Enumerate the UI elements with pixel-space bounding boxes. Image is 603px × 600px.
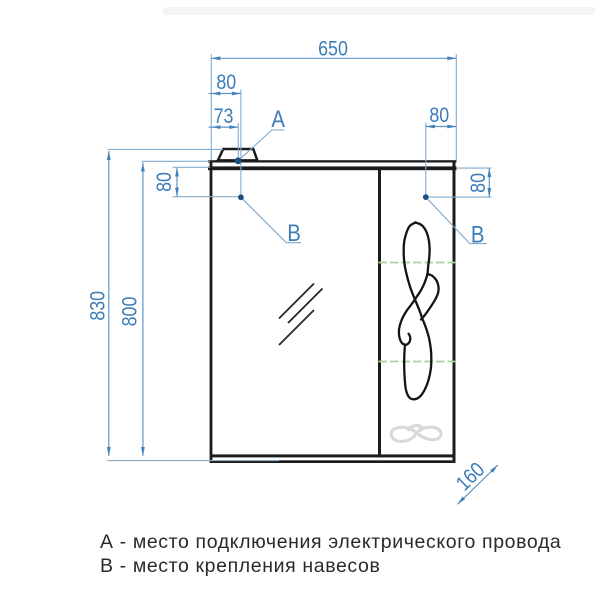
svg-text:650: 650 xyxy=(318,37,348,61)
svg-text:800: 800 xyxy=(118,296,142,326)
svg-text:80: 80 xyxy=(216,71,236,95)
svg-text:80: 80 xyxy=(429,104,449,128)
svg-text:B: B xyxy=(471,221,485,248)
svg-text:A: A xyxy=(271,106,285,133)
svg-text:B: B xyxy=(287,219,301,246)
svg-text:80: 80 xyxy=(153,172,177,192)
svg-text:830: 830 xyxy=(86,291,110,321)
svg-text:80: 80 xyxy=(467,173,491,193)
svg-text:73: 73 xyxy=(214,105,234,129)
